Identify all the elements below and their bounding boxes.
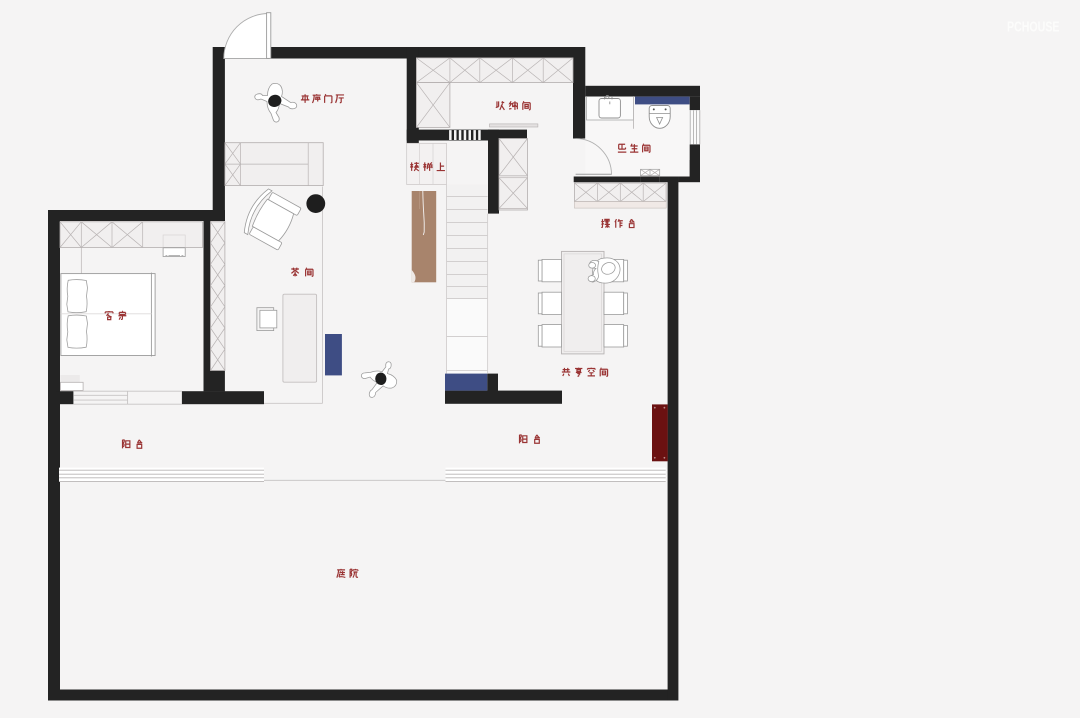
svg-text:PCHOUSE: PCHOUSE [1007, 20, 1060, 36]
